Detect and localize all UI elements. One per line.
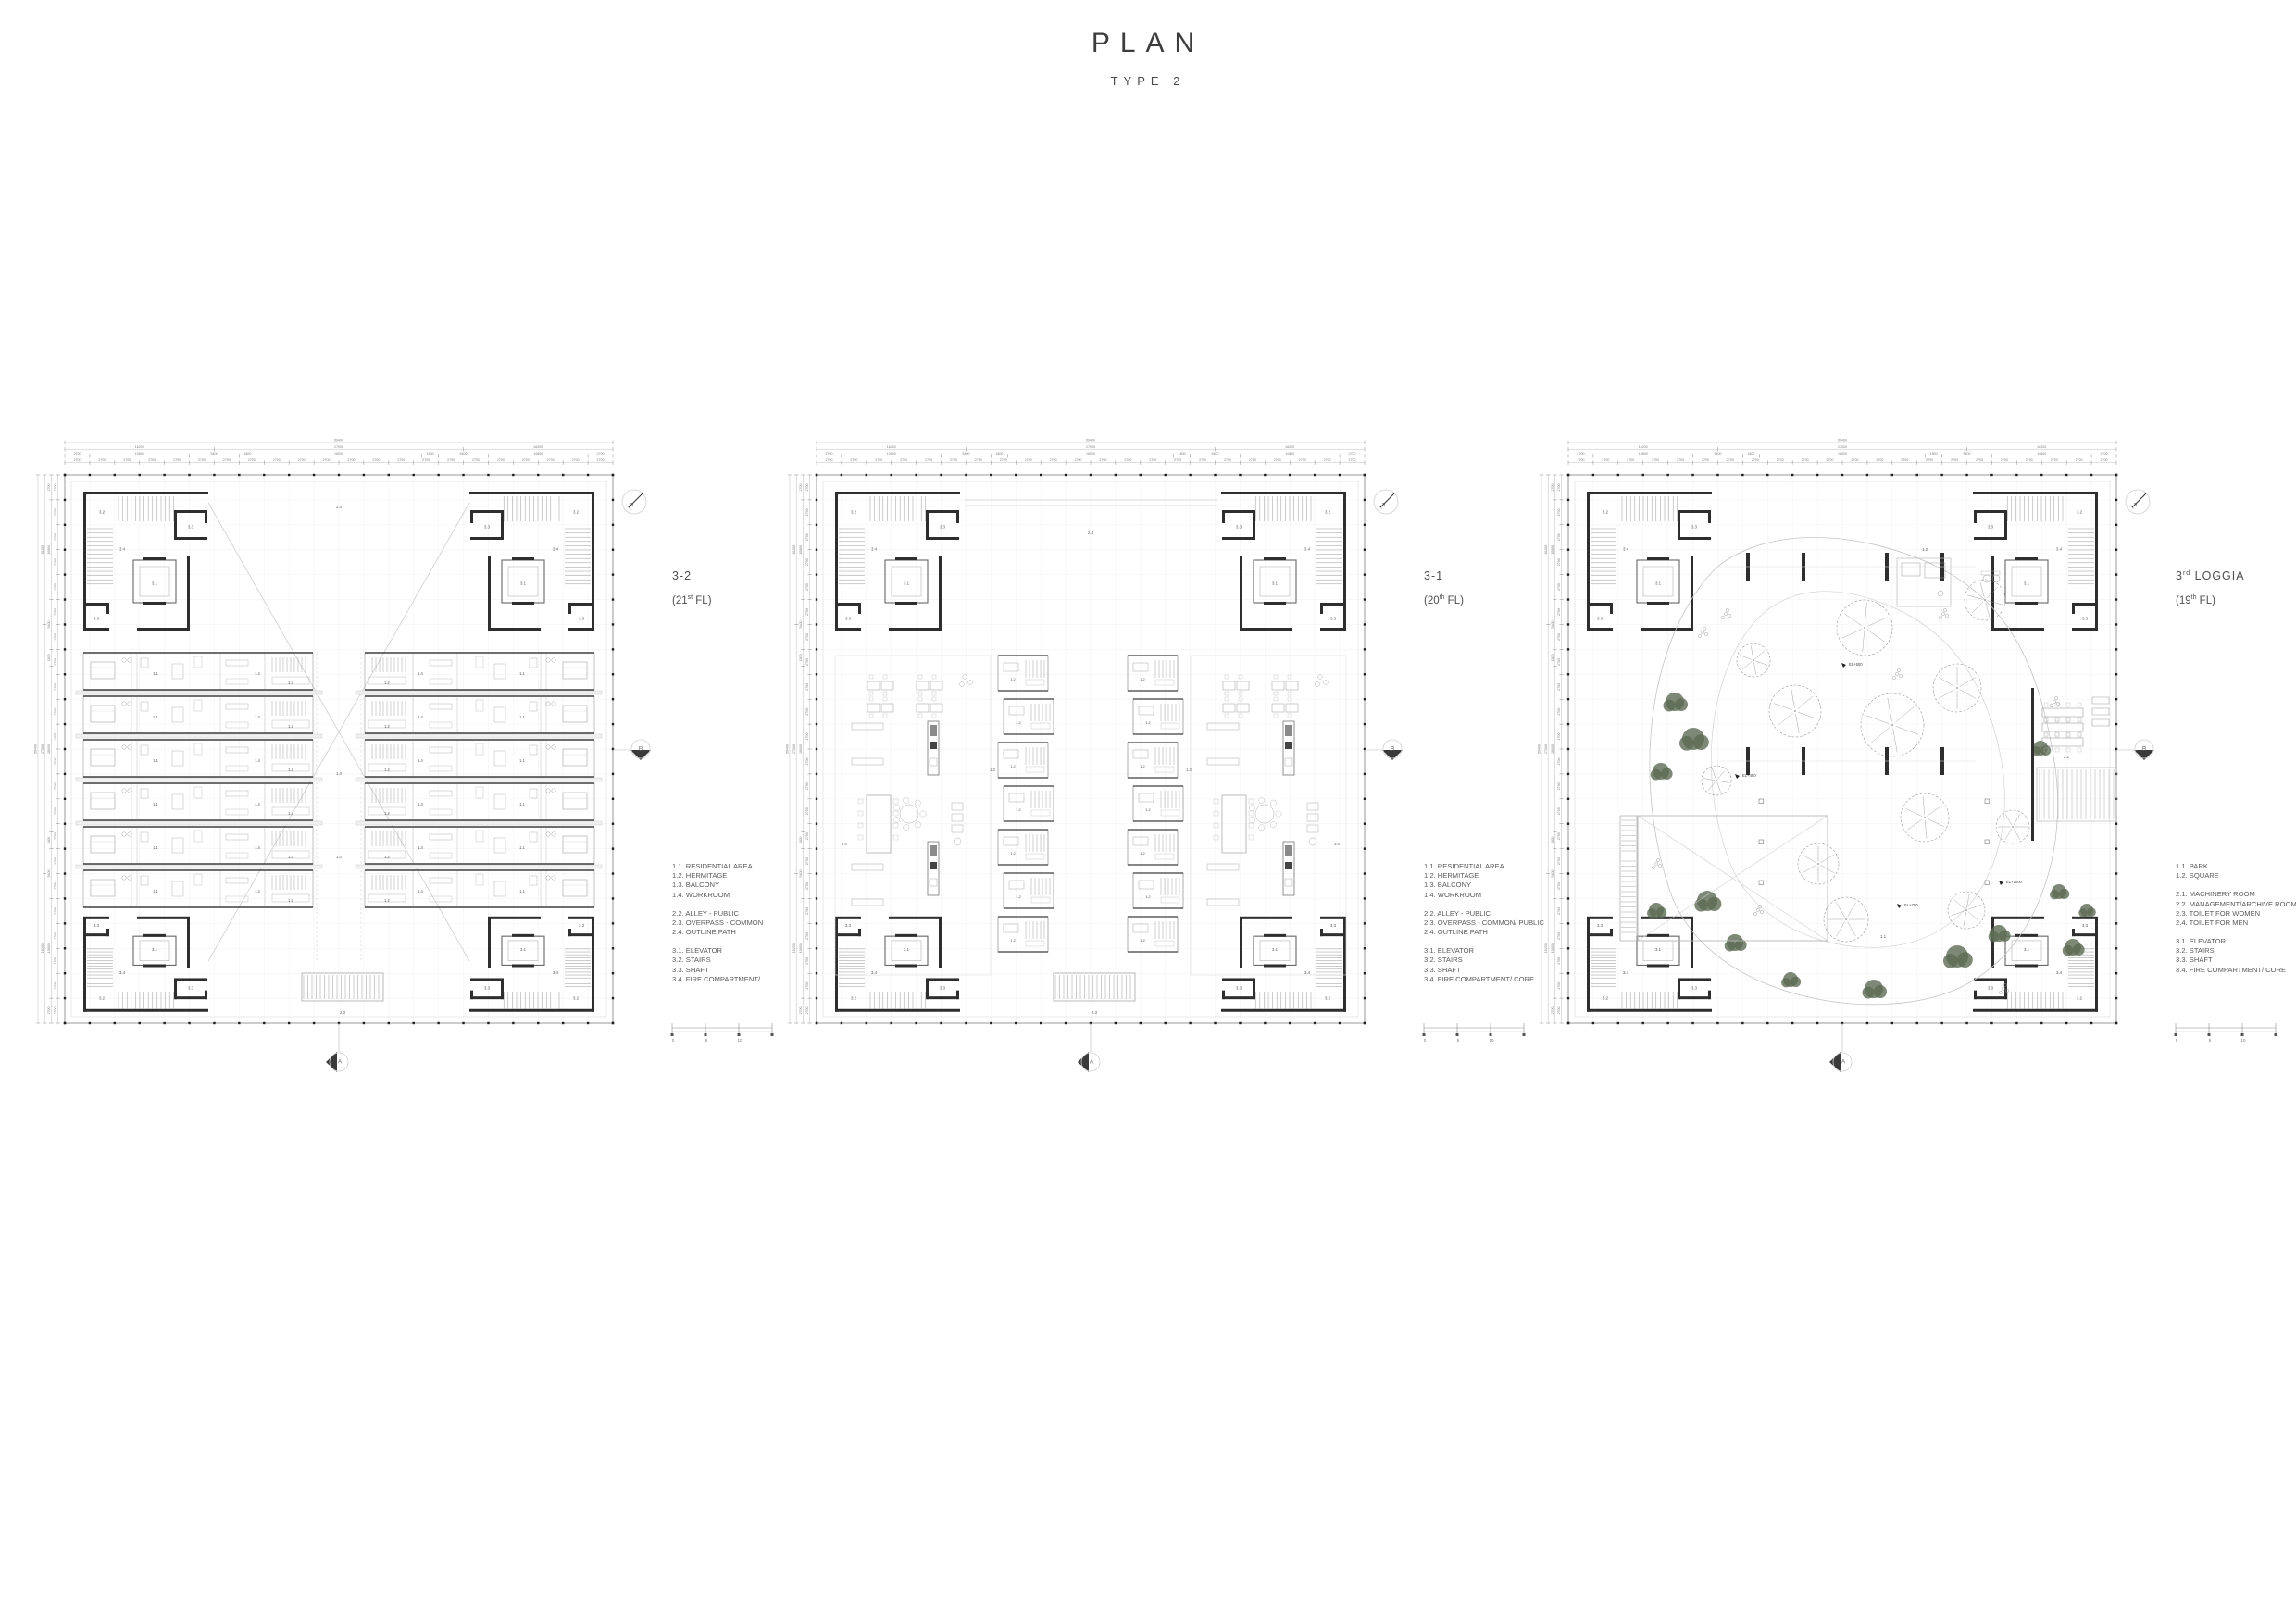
svg-text:18000: 18000 bbox=[334, 452, 343, 456]
svg-text:27000: 27000 bbox=[41, 744, 44, 754]
svg-text:2700: 2700 bbox=[54, 807, 57, 815]
shrub bbox=[1679, 728, 1709, 751]
svg-text:10800: 10800 bbox=[47, 943, 51, 953]
svg-text:2700: 2700 bbox=[522, 458, 530, 462]
svg-text:1.2: 1.2 bbox=[384, 681, 390, 685]
svg-text:5400: 5400 bbox=[460, 452, 468, 456]
svg-text:10800: 10800 bbox=[1285, 452, 1294, 456]
svg-text:2700: 2700 bbox=[805, 583, 809, 591]
svg-text:16200: 16200 bbox=[41, 545, 44, 555]
svg-text:3.2: 3.2 bbox=[573, 510, 580, 515]
svg-text:2700: 2700 bbox=[805, 608, 809, 616]
shrub bbox=[2063, 939, 2085, 956]
svg-text:1.1: 1.1 bbox=[519, 802, 525, 806]
svg-text:2700: 2700 bbox=[1557, 857, 1561, 865]
svg-text:18000: 18000 bbox=[1551, 744, 1554, 754]
svg-text:2700: 2700 bbox=[825, 458, 832, 462]
unit-row: 1.11.41.2 bbox=[365, 783, 594, 820]
svg-text:2700: 2700 bbox=[805, 932, 809, 940]
svg-text:2700: 2700 bbox=[1557, 782, 1561, 790]
legend-item: 1.3. BALCONY bbox=[672, 881, 781, 890]
svg-text:2700: 2700 bbox=[850, 458, 857, 462]
svg-text:2700: 2700 bbox=[2051, 458, 2058, 462]
svg-text:3.1: 3.1 bbox=[2024, 581, 2030, 586]
svg-text:2700: 2700 bbox=[799, 1007, 803, 1015]
svg-text:3.3: 3.3 bbox=[940, 525, 946, 530]
north-arrow-icon bbox=[1374, 490, 1398, 514]
svg-text:1.2: 1.2 bbox=[384, 898, 390, 903]
svg-text:1.2: 1.2 bbox=[1140, 677, 1145, 681]
svg-text:3.3: 3.3 bbox=[484, 525, 491, 530]
svg-text:2.1: 2.1 bbox=[2064, 755, 2069, 759]
hermitage-unit: 1.2 bbox=[1004, 699, 1054, 734]
legend-group: 1.1. RESIDENTIAL AREA1.2. HERMITAGE1.3. … bbox=[1424, 862, 1533, 900]
svg-text:2700: 2700 bbox=[1557, 608, 1561, 616]
svg-text:3.4: 3.4 bbox=[553, 970, 559, 975]
svg-text:10: 10 bbox=[737, 1038, 742, 1043]
svg-text:2700: 2700 bbox=[1557, 583, 1561, 591]
svg-text:2700: 2700 bbox=[1876, 458, 1883, 462]
svg-text:2700: 2700 bbox=[1557, 733, 1561, 741]
svg-text:3.2: 3.2 bbox=[851, 510, 857, 515]
tree bbox=[1737, 643, 1770, 677]
svg-text:16200: 16200 bbox=[1639, 445, 1648, 449]
plan-title: 3rd LOGGIA (19th FL) bbox=[2176, 569, 2245, 606]
svg-text:1.4: 1.4 bbox=[255, 671, 260, 676]
svg-text:2700: 2700 bbox=[805, 483, 809, 491]
svg-text:59400: 59400 bbox=[1538, 744, 1541, 754]
svg-text:1.4: 1.4 bbox=[418, 845, 423, 850]
svg-text:1.2: 1.2 bbox=[1140, 851, 1145, 856]
svg-text:1.2: 1.2 bbox=[384, 768, 390, 772]
shrub bbox=[2078, 904, 2096, 917]
svg-text:1.1: 1.1 bbox=[153, 802, 158, 806]
svg-text:1.4: 1.4 bbox=[255, 758, 260, 763]
plan-floor: (21st FL) bbox=[672, 594, 712, 606]
svg-text:B: B bbox=[1391, 746, 1394, 753]
svg-text:2700: 2700 bbox=[1557, 982, 1561, 990]
svg-text:5400: 5400 bbox=[1212, 452, 1219, 456]
svg-text:2700: 2700 bbox=[54, 483, 57, 491]
scale-bar: 0510 bbox=[668, 1019, 778, 1045]
svg-text:2700: 2700 bbox=[54, 583, 57, 591]
svg-text:2700: 2700 bbox=[975, 458, 982, 462]
svg-text:3.4: 3.4 bbox=[119, 970, 126, 975]
sheet-title: PLAN bbox=[0, 0, 2296, 59]
svg-text:3.3: 3.3 bbox=[2082, 923, 2089, 928]
svg-text:2700: 2700 bbox=[950, 458, 957, 462]
svg-text:27000: 27000 bbox=[334, 445, 343, 449]
svg-text:3.3: 3.3 bbox=[1988, 525, 1994, 530]
svg-text:B: B bbox=[639, 746, 643, 753]
corner-core: 3.23.33.13.33.4 bbox=[835, 492, 960, 631]
svg-text:3.3: 3.3 bbox=[2082, 617, 2089, 621]
svg-text:2700: 2700 bbox=[805, 533, 809, 541]
svg-text:3.3: 3.3 bbox=[1988, 985, 1994, 990]
plan-annotations: 3rd LOGGIA (19th FL) 1.1. PARK1.2. SQUAR… bbox=[2170, 432, 2283, 1090]
unit-row: 1.11.41.2 bbox=[365, 653, 594, 690]
svg-text:2700: 2700 bbox=[1249, 458, 1256, 462]
svg-text:2700: 2700 bbox=[54, 683, 57, 691]
svg-text:3.3: 3.3 bbox=[188, 985, 194, 990]
svg-text:59400: 59400 bbox=[34, 744, 38, 754]
svg-text:1.2: 1.2 bbox=[288, 724, 293, 729]
corner-core: 3.23.33.13.33.4 bbox=[1221, 492, 1346, 631]
svg-text:2.3: 2.3 bbox=[1092, 1010, 1098, 1015]
hermitage-unit: 1.2 bbox=[1004, 786, 1054, 821]
svg-text:2700: 2700 bbox=[372, 458, 380, 462]
svg-text:10800: 10800 bbox=[887, 452, 896, 456]
svg-text:2700: 2700 bbox=[1602, 458, 1609, 462]
svg-text:16200: 16200 bbox=[887, 445, 896, 449]
svg-text:1.2: 1.2 bbox=[1016, 894, 1021, 899]
svg-text:1.2: 1.2 bbox=[1010, 938, 1016, 943]
svg-text:1.2: 1.2 bbox=[1016, 807, 1021, 812]
svg-text:2700: 2700 bbox=[1557, 807, 1561, 815]
svg-text:A: A bbox=[338, 1059, 343, 1066]
legend-item: 1.2. HERMITAGE bbox=[672, 871, 781, 881]
north-arrow-icon bbox=[622, 490, 646, 514]
shrub bbox=[1863, 980, 1888, 999]
svg-text:2700: 2700 bbox=[1274, 458, 1281, 462]
svg-text:1.2: 1.2 bbox=[1145, 720, 1151, 725]
svg-text:2700: 2700 bbox=[472, 458, 480, 462]
hermitage-unit: 1.2 bbox=[998, 743, 1048, 778]
legend-item: 3.2. STAIRS bbox=[2176, 946, 2285, 956]
svg-text:1.3: 1.3 bbox=[336, 855, 342, 859]
svg-text:3.1: 3.1 bbox=[152, 581, 158, 586]
plans-row: 5940059400162002700016200162002700016200… bbox=[0, 432, 2296, 1090]
legend-item: 2.4. OUTLINE PATH bbox=[1424, 928, 1533, 937]
svg-text:1.1: 1.1 bbox=[1880, 934, 1887, 939]
svg-text:3.1: 3.1 bbox=[904, 947, 910, 952]
plan-legend: 1.1. PARK1.2. SQUARE2.1. MACHINERY ROOM2… bbox=[2176, 862, 2285, 984]
svg-text:5400: 5400 bbox=[799, 870, 803, 878]
svg-text:10800: 10800 bbox=[2037, 452, 2046, 456]
svg-text:1.4: 1.4 bbox=[418, 889, 423, 893]
legend-item: 3.3. SHAFT bbox=[2176, 956, 2285, 965]
svg-text:2700: 2700 bbox=[1557, 558, 1561, 566]
loggia-floor-content: 2.1EL+500EL+450EL+750EL+10001.11.2 bbox=[1620, 538, 2116, 1005]
svg-text:3.3: 3.3 bbox=[1236, 985, 1242, 990]
svg-text:2700: 2700 bbox=[1677, 458, 1684, 462]
svg-text:2700: 2700 bbox=[54, 633, 57, 641]
svg-text:5: 5 bbox=[2209, 1038, 2212, 1043]
svg-text:1.1: 1.1 bbox=[153, 889, 158, 893]
svg-text:2700: 2700 bbox=[1557, 633, 1561, 641]
svg-text:3.2: 3.2 bbox=[99, 510, 106, 515]
svg-text:2700: 2700 bbox=[1627, 458, 1634, 462]
svg-text:1.2: 1.2 bbox=[288, 898, 293, 903]
svg-text:5400: 5400 bbox=[1714, 452, 1721, 456]
svg-text:2700: 2700 bbox=[1901, 458, 1908, 462]
svg-text:1.1: 1.1 bbox=[153, 715, 158, 719]
svg-text:5400: 5400 bbox=[962, 452, 969, 456]
legend-group: 2.2. ALLEY - PUBLIC2.3. OVERPASS - COMMO… bbox=[1424, 909, 1533, 938]
legend-item: 1.3. BALCONY bbox=[1424, 881, 1533, 890]
svg-text:1800: 1800 bbox=[1747, 452, 1754, 456]
svg-text:2700: 2700 bbox=[1827, 458, 1834, 462]
svg-text:2700: 2700 bbox=[805, 832, 809, 840]
svg-text:1800: 1800 bbox=[799, 654, 803, 661]
tree bbox=[1948, 892, 1985, 929]
svg-text:10: 10 bbox=[1489, 1038, 1494, 1043]
svg-text:2700: 2700 bbox=[2026, 458, 2033, 462]
svg-text:59400: 59400 bbox=[334, 439, 343, 443]
hermitage-unit: 1.2 bbox=[1133, 786, 1183, 821]
shrub bbox=[1781, 972, 1801, 987]
shrub bbox=[1694, 891, 1721, 912]
legend-item: 1.2. SQUARE bbox=[2176, 871, 2285, 881]
svg-text:1800: 1800 bbox=[1551, 837, 1554, 844]
svg-text:1.2: 1.2 bbox=[1010, 851, 1016, 856]
svg-text:18000: 18000 bbox=[47, 744, 51, 754]
svg-text:2700: 2700 bbox=[54, 907, 57, 915]
svg-text:10800: 10800 bbox=[47, 545, 51, 555]
tree bbox=[1901, 793, 1949, 842]
svg-text:2700: 2700 bbox=[1557, 757, 1561, 765]
building-content: 3.23.33.13.33.43.23.33.13.33.43.23.33.13… bbox=[1587, 492, 2116, 1012]
svg-text:2700: 2700 bbox=[447, 458, 455, 462]
svg-text:3.3: 3.3 bbox=[1236, 525, 1242, 530]
drawing-sheet: { "page": { "title": "PLAN", "subtitle":… bbox=[0, 0, 2296, 1624]
svg-text:2700: 2700 bbox=[805, 708, 809, 716]
svg-text:3.3: 3.3 bbox=[94, 617, 100, 621]
svg-text:2700: 2700 bbox=[805, 733, 809, 741]
svg-text:2700: 2700 bbox=[54, 857, 57, 865]
svg-text:1.4: 1.4 bbox=[255, 845, 260, 850]
svg-text:5: 5 bbox=[705, 1038, 708, 1043]
svg-text:2700: 2700 bbox=[1349, 452, 1356, 456]
legend-item: 1.4. WORKROOM bbox=[1424, 891, 1533, 900]
plan-floor: (20th FL) bbox=[1424, 594, 1464, 606]
plan-annotations: 3-1 (20th FL) 1.1. RESIDENTIAL AREA1.2. … bbox=[1418, 432, 1531, 1090]
svg-text:2700: 2700 bbox=[1557, 658, 1561, 666]
legend-item: 3.4. FIRE COMPARTMENT/ bbox=[672, 975, 781, 984]
svg-text:2700: 2700 bbox=[597, 452, 605, 456]
corner-core: 3.23.33.13.33.4 bbox=[83, 917, 208, 1012]
svg-text:2.4: 2.4 bbox=[842, 842, 847, 846]
svg-text:B: B bbox=[2142, 746, 2146, 753]
legend-group: 1.1. PARK1.2. SQUARE bbox=[2176, 862, 2285, 881]
svg-text:2700: 2700 bbox=[1557, 882, 1561, 890]
legend-item: 2.4. TOILET FOR MEN bbox=[2176, 918, 2285, 928]
svg-text:5400: 5400 bbox=[799, 620, 803, 628]
svg-text:1800: 1800 bbox=[243, 452, 251, 456]
svg-text:2700: 2700 bbox=[54, 832, 57, 840]
svg-text:1.1: 1.1 bbox=[519, 845, 525, 850]
svg-text:59400: 59400 bbox=[786, 744, 790, 754]
svg-text:2.4: 2.4 bbox=[336, 505, 343, 509]
svg-text:2700: 2700 bbox=[2001, 458, 2008, 462]
svg-text:1.2: 1.2 bbox=[1016, 720, 1021, 725]
scale-bar: 0510 bbox=[1420, 1019, 1529, 1045]
svg-text:2700: 2700 bbox=[805, 807, 809, 815]
legend-item: 2.3. OVERPASS - COMMON/ PUBLIC bbox=[1424, 918, 1533, 928]
svg-text:3.3: 3.3 bbox=[94, 923, 100, 928]
legend-item: 1.1. PARK bbox=[2176, 862, 2285, 871]
tree bbox=[1965, 580, 2005, 620]
svg-text:0: 0 bbox=[2176, 1038, 2178, 1043]
svg-text:1.2: 1.2 bbox=[1140, 764, 1145, 768]
tree bbox=[1996, 810, 2029, 843]
svg-text:16200: 16200 bbox=[1285, 445, 1294, 449]
svg-text:1.4: 1.4 bbox=[255, 889, 260, 893]
svg-text:3.2: 3.2 bbox=[851, 995, 857, 1000]
svg-text:3.4: 3.4 bbox=[1304, 970, 1311, 975]
hermitage-unit: 1.2 bbox=[998, 917, 1048, 952]
svg-text:3.3: 3.3 bbox=[1330, 923, 1337, 928]
tree bbox=[1702, 766, 1731, 795]
svg-text:2700: 2700 bbox=[323, 458, 331, 462]
svg-text:2700: 2700 bbox=[54, 782, 57, 790]
svg-text:2700: 2700 bbox=[1557, 708, 1561, 716]
svg-text:59400: 59400 bbox=[1086, 439, 1095, 443]
svg-text:2700: 2700 bbox=[805, 683, 809, 691]
elevation-marker: EL+500 bbox=[1841, 662, 1863, 668]
legend-item: 3.1. ELEVATOR bbox=[2176, 937, 2285, 946]
svg-text:2700: 2700 bbox=[54, 508, 57, 516]
svg-text:2700: 2700 bbox=[825, 452, 832, 456]
tree bbox=[1837, 600, 1892, 656]
svg-text:2700: 2700 bbox=[273, 458, 281, 462]
svg-text:3.3: 3.3 bbox=[188, 525, 194, 530]
svg-text:2700: 2700 bbox=[47, 483, 51, 491]
unit-row: 1.11.41.2 bbox=[83, 870, 313, 907]
svg-text:27000: 27000 bbox=[1544, 744, 1548, 754]
svg-text:2700: 2700 bbox=[805, 508, 809, 516]
svg-text:3.3: 3.3 bbox=[1691, 985, 1698, 990]
svg-text:2700: 2700 bbox=[347, 458, 355, 462]
svg-text:2700: 2700 bbox=[54, 658, 57, 666]
svg-text:2700: 2700 bbox=[54, 733, 57, 741]
svg-text:3.1: 3.1 bbox=[1272, 581, 1279, 586]
svg-text:10800: 10800 bbox=[135, 452, 144, 456]
svg-text:A: A bbox=[1841, 1059, 1846, 1066]
svg-text:16200: 16200 bbox=[41, 943, 44, 953]
svg-text:2700: 2700 bbox=[1557, 957, 1561, 965]
hermitage-unit: 1.2 bbox=[1133, 699, 1183, 734]
svg-text:5: 5 bbox=[1457, 1038, 1460, 1043]
shrub bbox=[1725, 934, 1747, 951]
common-furniture-zone bbox=[1191, 656, 1346, 975]
svg-text:1.3: 1.3 bbox=[1186, 768, 1192, 772]
svg-text:2700: 2700 bbox=[805, 658, 809, 666]
svg-text:3.2: 3.2 bbox=[2077, 995, 2083, 1000]
svg-text:1.2: 1.2 bbox=[1010, 677, 1016, 681]
hermitage-unit: 1.2 bbox=[1133, 873, 1183, 908]
tree bbox=[1769, 685, 1821, 737]
svg-text:3.3: 3.3 bbox=[1330, 617, 1337, 621]
legend-group: 1.1. RESIDENTIAL AREA1.2. HERMITAGE1.3. … bbox=[672, 862, 781, 900]
svg-text:2700: 2700 bbox=[900, 458, 907, 462]
svg-text:2700: 2700 bbox=[805, 857, 809, 865]
svg-text:1.1: 1.1 bbox=[519, 715, 525, 719]
svg-text:2700: 2700 bbox=[2101, 452, 2108, 456]
svg-text:5400: 5400 bbox=[1964, 452, 1971, 456]
svg-text:16200: 16200 bbox=[792, 545, 796, 555]
svg-text:3.3: 3.3 bbox=[1691, 525, 1698, 530]
svg-text:2700: 2700 bbox=[47, 1007, 51, 1015]
svg-text:16200: 16200 bbox=[533, 445, 543, 449]
svg-text:1.1: 1.1 bbox=[153, 758, 158, 763]
svg-text:1.3: 1.3 bbox=[990, 768, 995, 772]
corner-core: 3.23.33.13.33.4 bbox=[1973, 492, 2098, 631]
plan-name: 3-1 bbox=[1424, 569, 1464, 582]
section-marker-b: B bbox=[613, 740, 651, 760]
svg-text:2700: 2700 bbox=[805, 633, 809, 641]
svg-text:2700: 2700 bbox=[1577, 458, 1584, 462]
legend-item: 2.4. OUTLINE PATH bbox=[672, 928, 781, 937]
hermitage-unit: 1.2 bbox=[1128, 830, 1178, 865]
svg-text:2700: 2700 bbox=[1951, 458, 1958, 462]
svg-text:1800: 1800 bbox=[1179, 452, 1186, 456]
svg-text:0: 0 bbox=[672, 1038, 675, 1043]
corner-core: 3.23.33.13.33.4 bbox=[469, 917, 594, 1012]
svg-text:2700: 2700 bbox=[54, 533, 57, 541]
svg-text:3.3: 3.3 bbox=[845, 923, 852, 928]
svg-text:59400: 59400 bbox=[1838, 439, 1847, 443]
unit-row: 1.11.41.2 bbox=[83, 740, 313, 777]
unit-row: 1.11.41.2 bbox=[83, 696, 313, 733]
svg-text:2700: 2700 bbox=[805, 982, 809, 990]
svg-text:2700: 2700 bbox=[54, 708, 57, 716]
svg-text:1.2: 1.2 bbox=[1145, 894, 1151, 899]
svg-text:16200: 16200 bbox=[792, 943, 796, 953]
svg-text:3.1: 3.1 bbox=[904, 581, 910, 586]
svg-text:2700: 2700 bbox=[1557, 832, 1561, 840]
svg-text:EL+750: EL+750 bbox=[1904, 903, 1918, 907]
svg-text:16200: 16200 bbox=[2037, 445, 2046, 449]
svg-text:3.3: 3.3 bbox=[579, 617, 585, 621]
svg-text:3.1: 3.1 bbox=[1655, 947, 1662, 952]
svg-text:1.4: 1.4 bbox=[418, 671, 423, 676]
svg-text:3.2: 3.2 bbox=[2077, 510, 2083, 515]
svg-text:2700: 2700 bbox=[925, 458, 932, 462]
svg-text:2700: 2700 bbox=[98, 458, 106, 462]
legend-item: 3.1. ELEVATOR bbox=[1424, 946, 1533, 956]
svg-text:2700: 2700 bbox=[422, 458, 430, 462]
svg-text:2700: 2700 bbox=[173, 458, 181, 462]
svg-text:2700: 2700 bbox=[805, 757, 809, 765]
svg-text:1800: 1800 bbox=[799, 837, 803, 844]
shrub bbox=[1651, 763, 1673, 780]
svg-text:3.4: 3.4 bbox=[2056, 547, 2063, 552]
svg-text:2700: 2700 bbox=[1025, 458, 1032, 462]
svg-text:2700: 2700 bbox=[805, 1007, 809, 1015]
unit-row: 1.11.41.2 bbox=[83, 827, 313, 864]
svg-text:3.1: 3.1 bbox=[2024, 947, 2030, 952]
svg-text:1.2: 1.2 bbox=[288, 855, 293, 859]
legend-item: 1.1. RESIDENTIAL AREA bbox=[1424, 862, 1533, 871]
svg-text:2700: 2700 bbox=[1557, 1007, 1561, 1015]
svg-text:2700: 2700 bbox=[123, 458, 131, 462]
svg-text:1.1: 1.1 bbox=[153, 845, 158, 850]
svg-text:2700: 2700 bbox=[1000, 458, 1007, 462]
svg-text:2700: 2700 bbox=[198, 458, 206, 462]
svg-text:3.4: 3.4 bbox=[871, 547, 878, 552]
svg-text:2.4: 2.4 bbox=[1334, 842, 1340, 846]
svg-text:2700: 2700 bbox=[1075, 458, 1082, 462]
legend-group: 2.1. MACHINERY ROOM2.2. MANAGEMENT/ARCHI… bbox=[2176, 890, 2285, 928]
svg-text:3.3: 3.3 bbox=[845, 617, 852, 621]
svg-text:2700: 2700 bbox=[54, 882, 57, 890]
svg-text:3.1: 3.1 bbox=[1272, 947, 1279, 952]
svg-text:3.4: 3.4 bbox=[119, 547, 126, 552]
svg-text:2700: 2700 bbox=[1557, 683, 1561, 691]
svg-text:1.1: 1.1 bbox=[153, 671, 158, 676]
svg-text:10800: 10800 bbox=[533, 452, 543, 456]
